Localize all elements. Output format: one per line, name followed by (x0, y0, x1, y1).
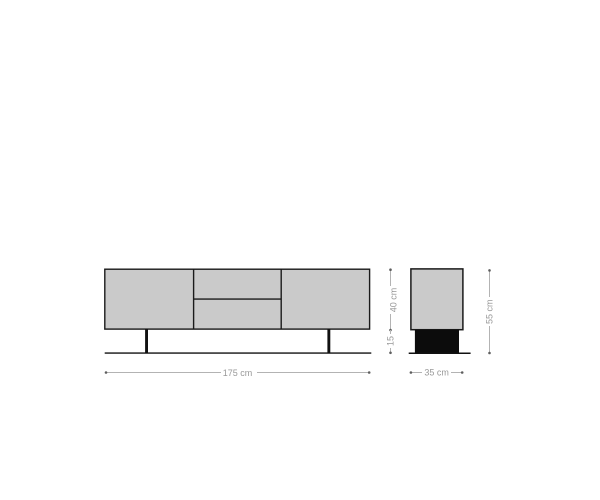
svg-text:35 cm: 35 cm (424, 368, 449, 378)
svg-text:40 cm: 40 cm (389, 288, 399, 313)
svg-text:55 cm: 55 cm (485, 299, 495, 324)
svg-text:15: 15 (386, 336, 396, 346)
svg-text:175 cm: 175 cm (223, 368, 253, 378)
